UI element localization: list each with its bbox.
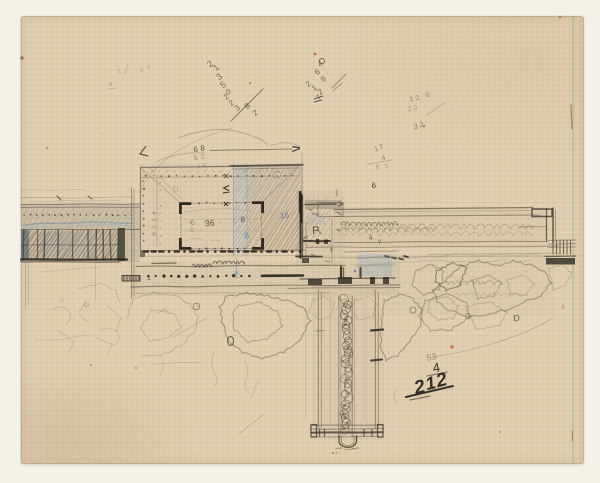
svg-text:5: 5 [384, 163, 389, 171]
svg-text:6: 6 [193, 155, 198, 162]
svg-text:0: 0 [425, 92, 431, 100]
svg-text:2: 2 [418, 120, 425, 130]
svg-text:8: 8 [200, 144, 206, 154]
svg-text:9: 9 [139, 67, 144, 75]
svg-text:6: 6 [151, 232, 158, 236]
svg-text:2: 2 [200, 154, 205, 161]
svg-text:1: 1 [147, 275, 152, 282]
svg-text:8: 8 [319, 74, 329, 84]
svg-text:6: 6 [371, 181, 377, 190]
svg-text:4: 4 [108, 81, 114, 89]
svg-text:6: 6 [190, 218, 195, 227]
svg-text:G: G [59, 297, 65, 304]
svg-text:7: 7 [378, 144, 384, 152]
svg-text:0: 0 [146, 64, 151, 72]
svg-text:0: 0 [413, 105, 418, 113]
svg-text:4: 4 [151, 211, 158, 215]
svg-text:1: 1 [409, 96, 415, 104]
svg-text:2: 2 [251, 108, 261, 118]
svg-text:1: 1 [151, 225, 158, 229]
svg-text:1: 1 [151, 218, 158, 222]
svg-text:D: D [173, 185, 180, 194]
svg-text:6: 6 [375, 164, 380, 172]
svg-text:8: 8 [561, 305, 565, 311]
svg-text:36: 36 [205, 218, 216, 229]
svg-text:G: G [84, 302, 90, 309]
